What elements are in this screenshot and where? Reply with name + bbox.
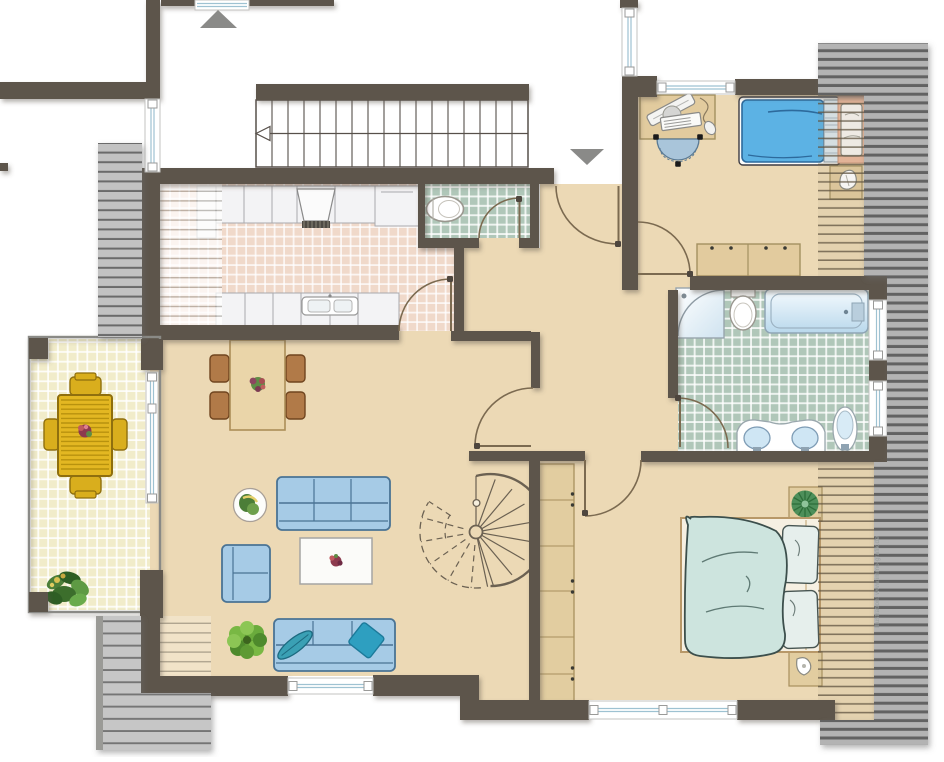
svg-text:Illustration: www.immo-grafik.: Illustration: www.immo-grafik.de [874, 536, 881, 628]
